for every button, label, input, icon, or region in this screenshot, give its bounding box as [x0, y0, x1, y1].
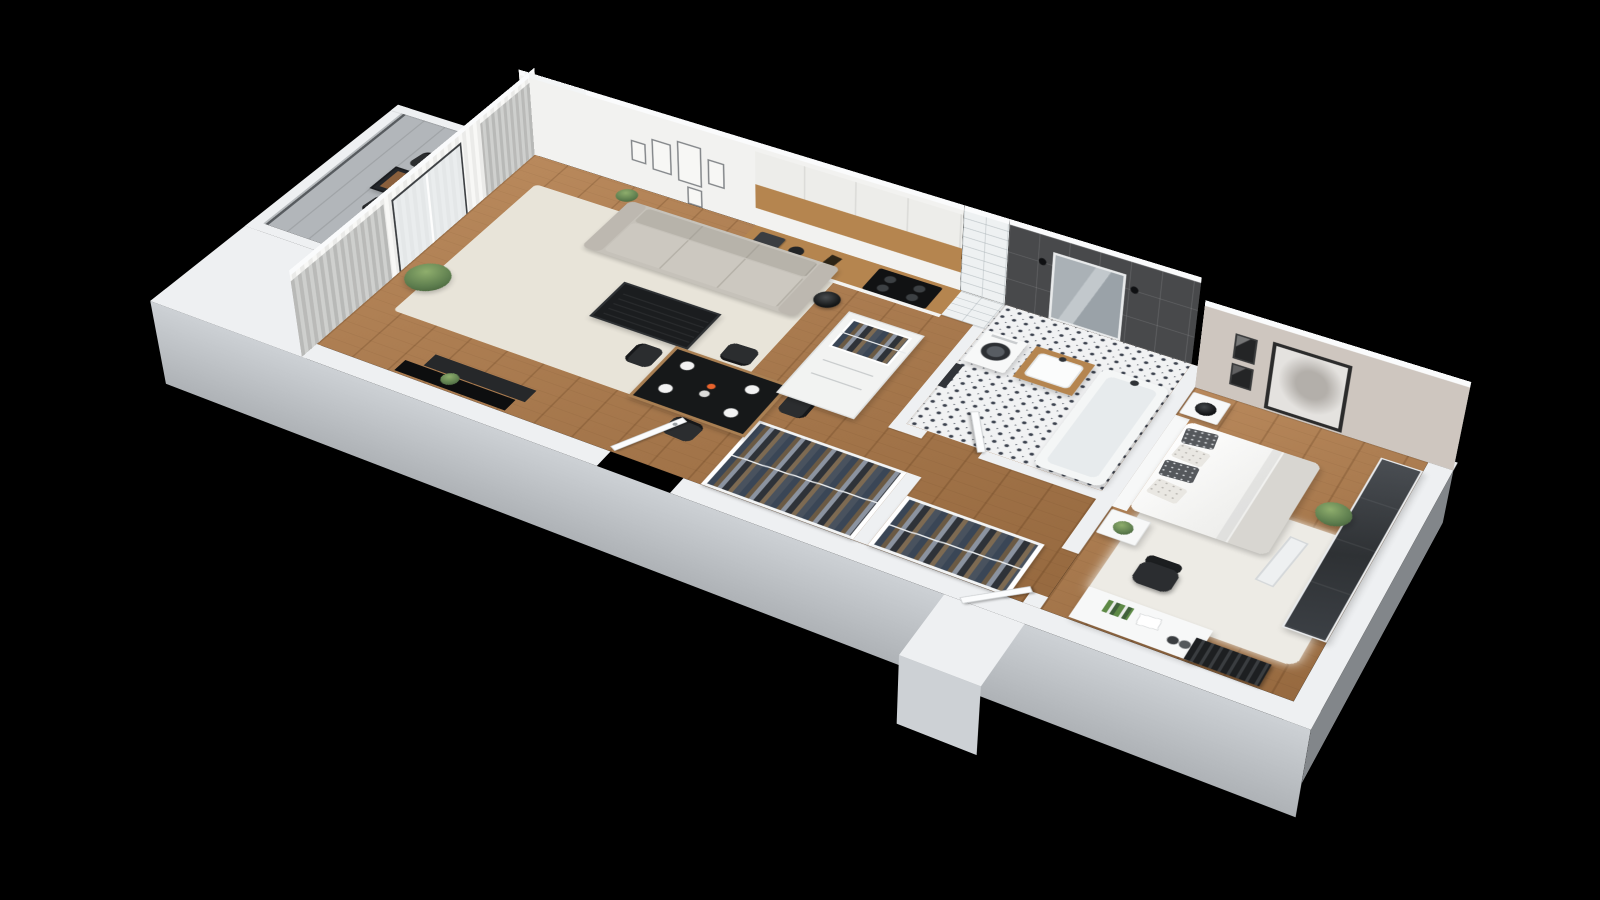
floor-plan [288, 155, 1600, 835]
niche-frame [1232, 333, 1257, 365]
render-canvas [0, 0, 1600, 900]
nightstand-plant-pot [1110, 519, 1137, 537]
door-mullion [425, 172, 435, 246]
cabinet-handles [811, 372, 862, 390]
sconce-light [1038, 257, 1046, 266]
gallery-frame [631, 139, 647, 164]
duct-tower [522, 46, 586, 95]
washer-porthole [975, 339, 1015, 364]
niche-frame [1229, 363, 1254, 391]
clothes-rail [732, 455, 877, 504]
desk-papers [1135, 613, 1163, 630]
sconce-light [1130, 285, 1139, 294]
door-handle [672, 422, 679, 426]
gallery-frame [651, 139, 672, 176]
cabinet-handles [822, 359, 873, 377]
desk-books [1101, 600, 1134, 621]
table-lamp [1192, 400, 1220, 418]
gallery-frame [707, 159, 724, 189]
gallery-frame [677, 141, 702, 188]
duct-column-wall [960, 205, 1010, 304]
